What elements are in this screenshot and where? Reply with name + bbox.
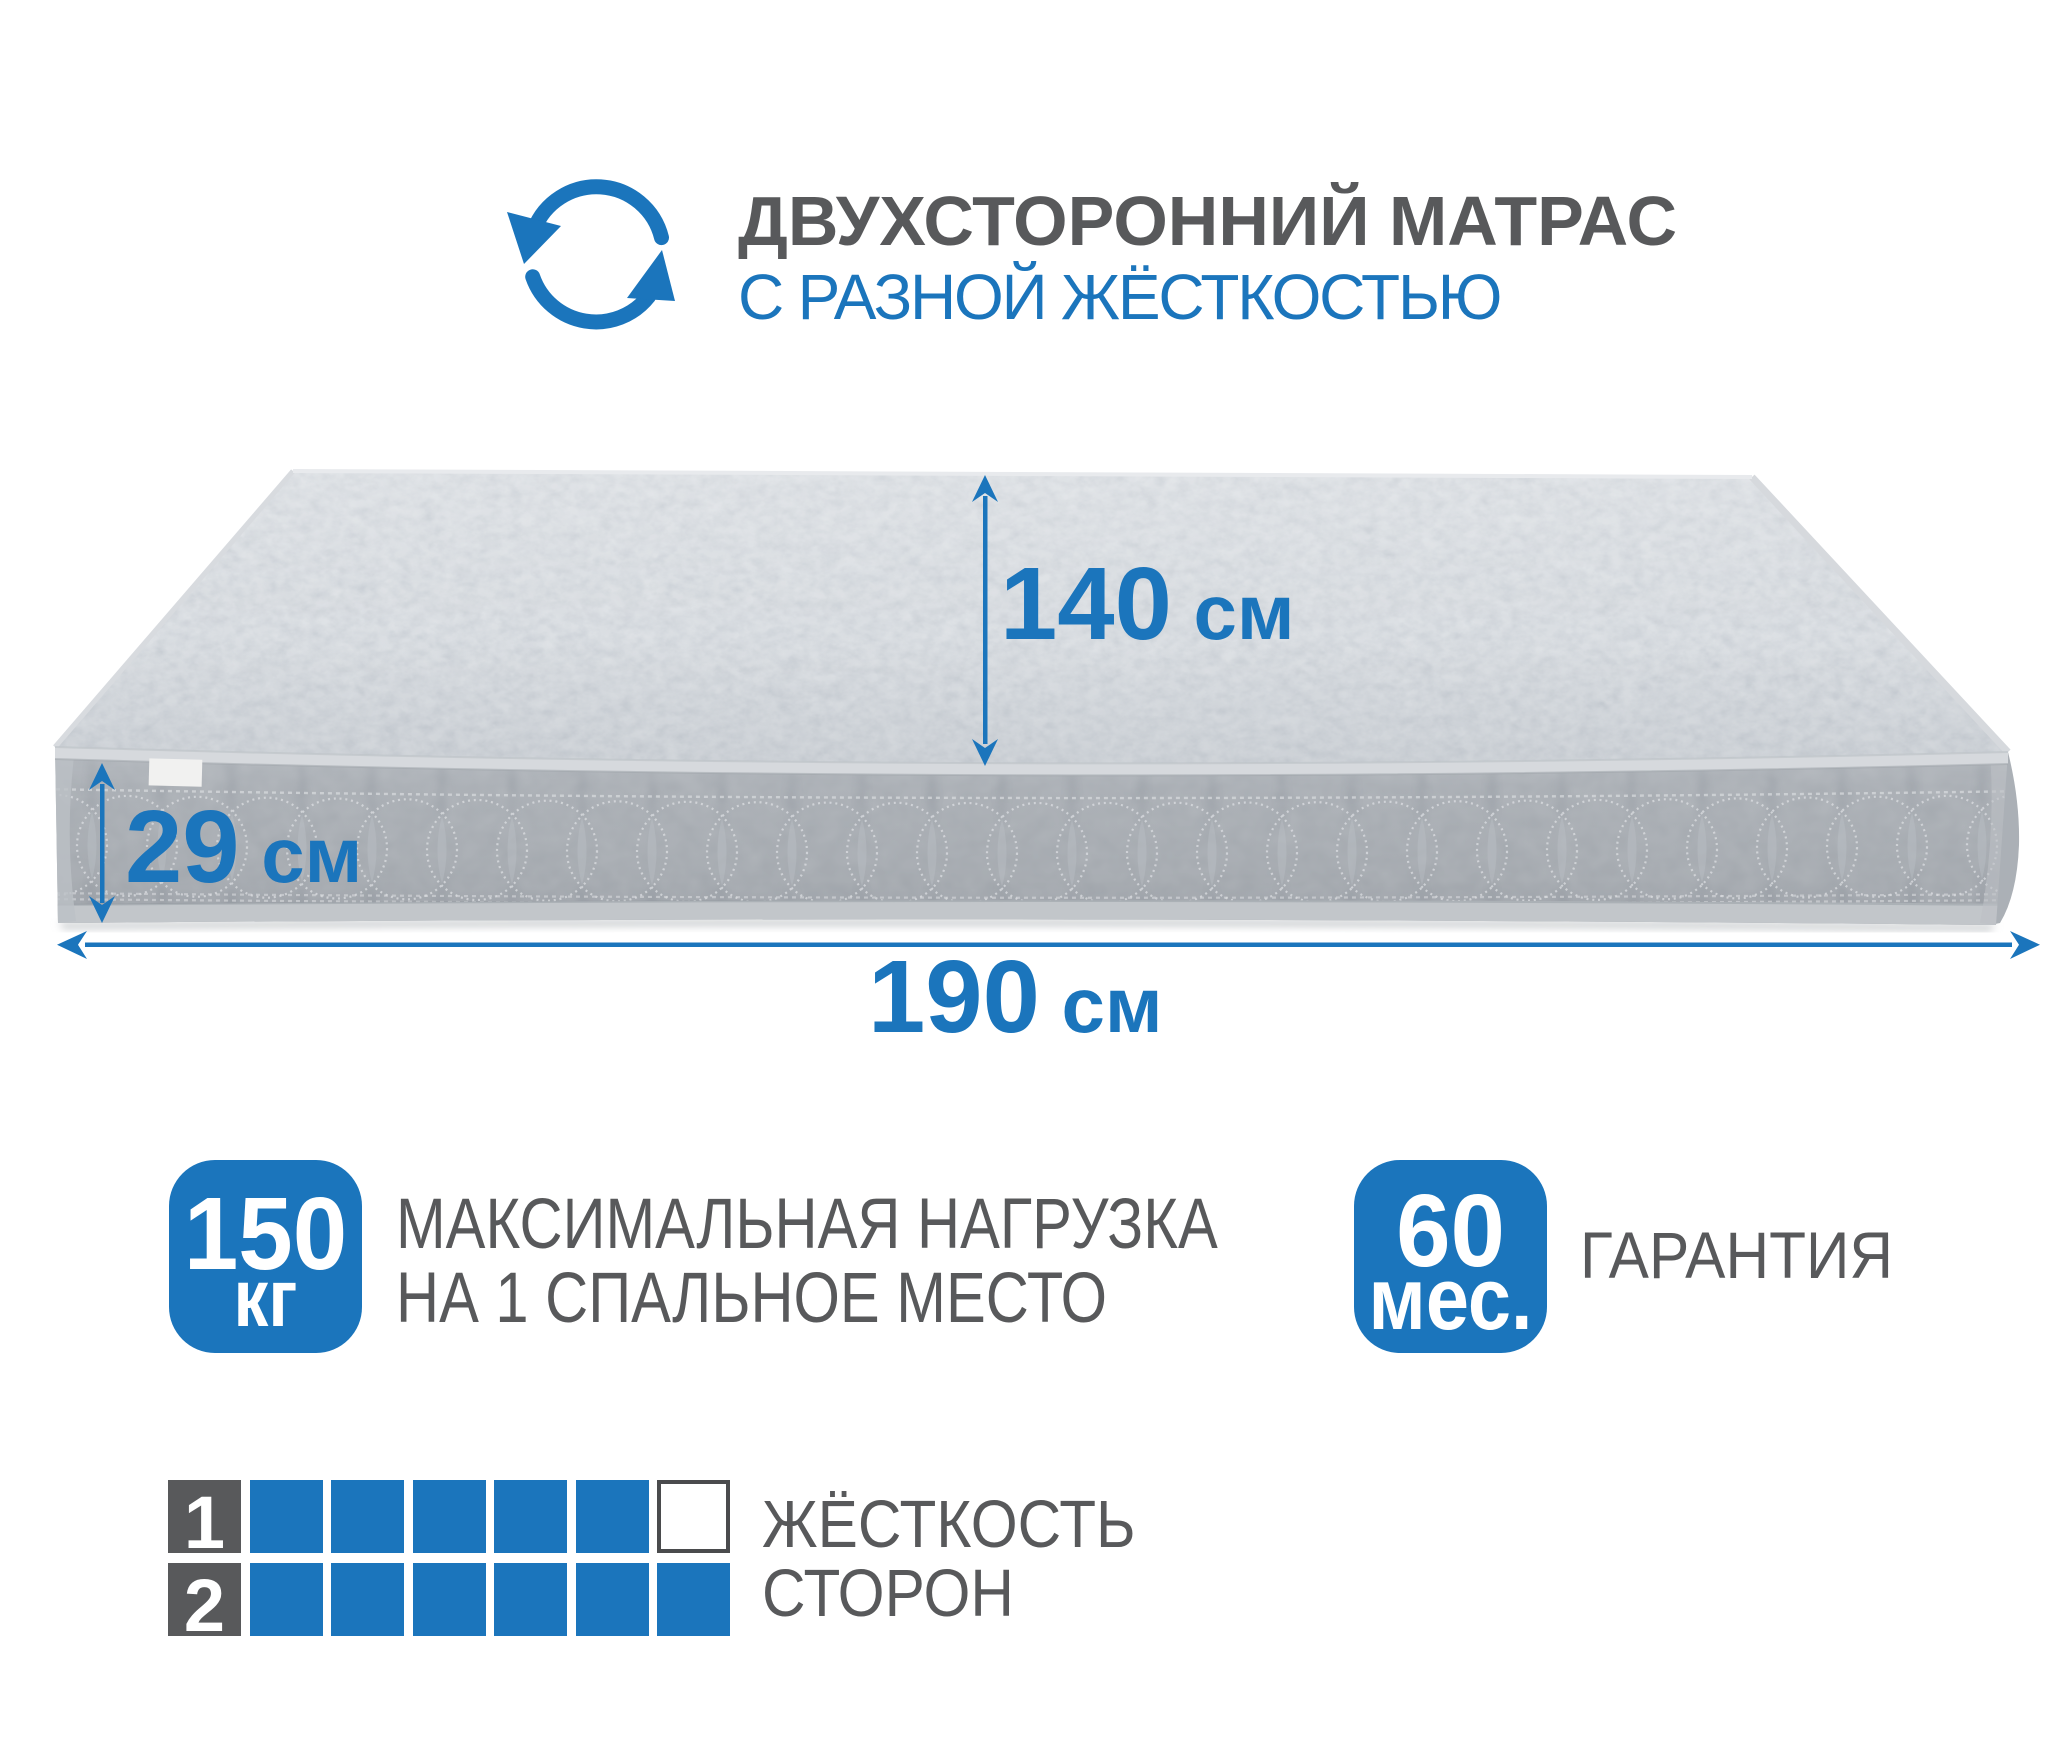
svg-text:190 см: 190 см: [868, 939, 1163, 1054]
